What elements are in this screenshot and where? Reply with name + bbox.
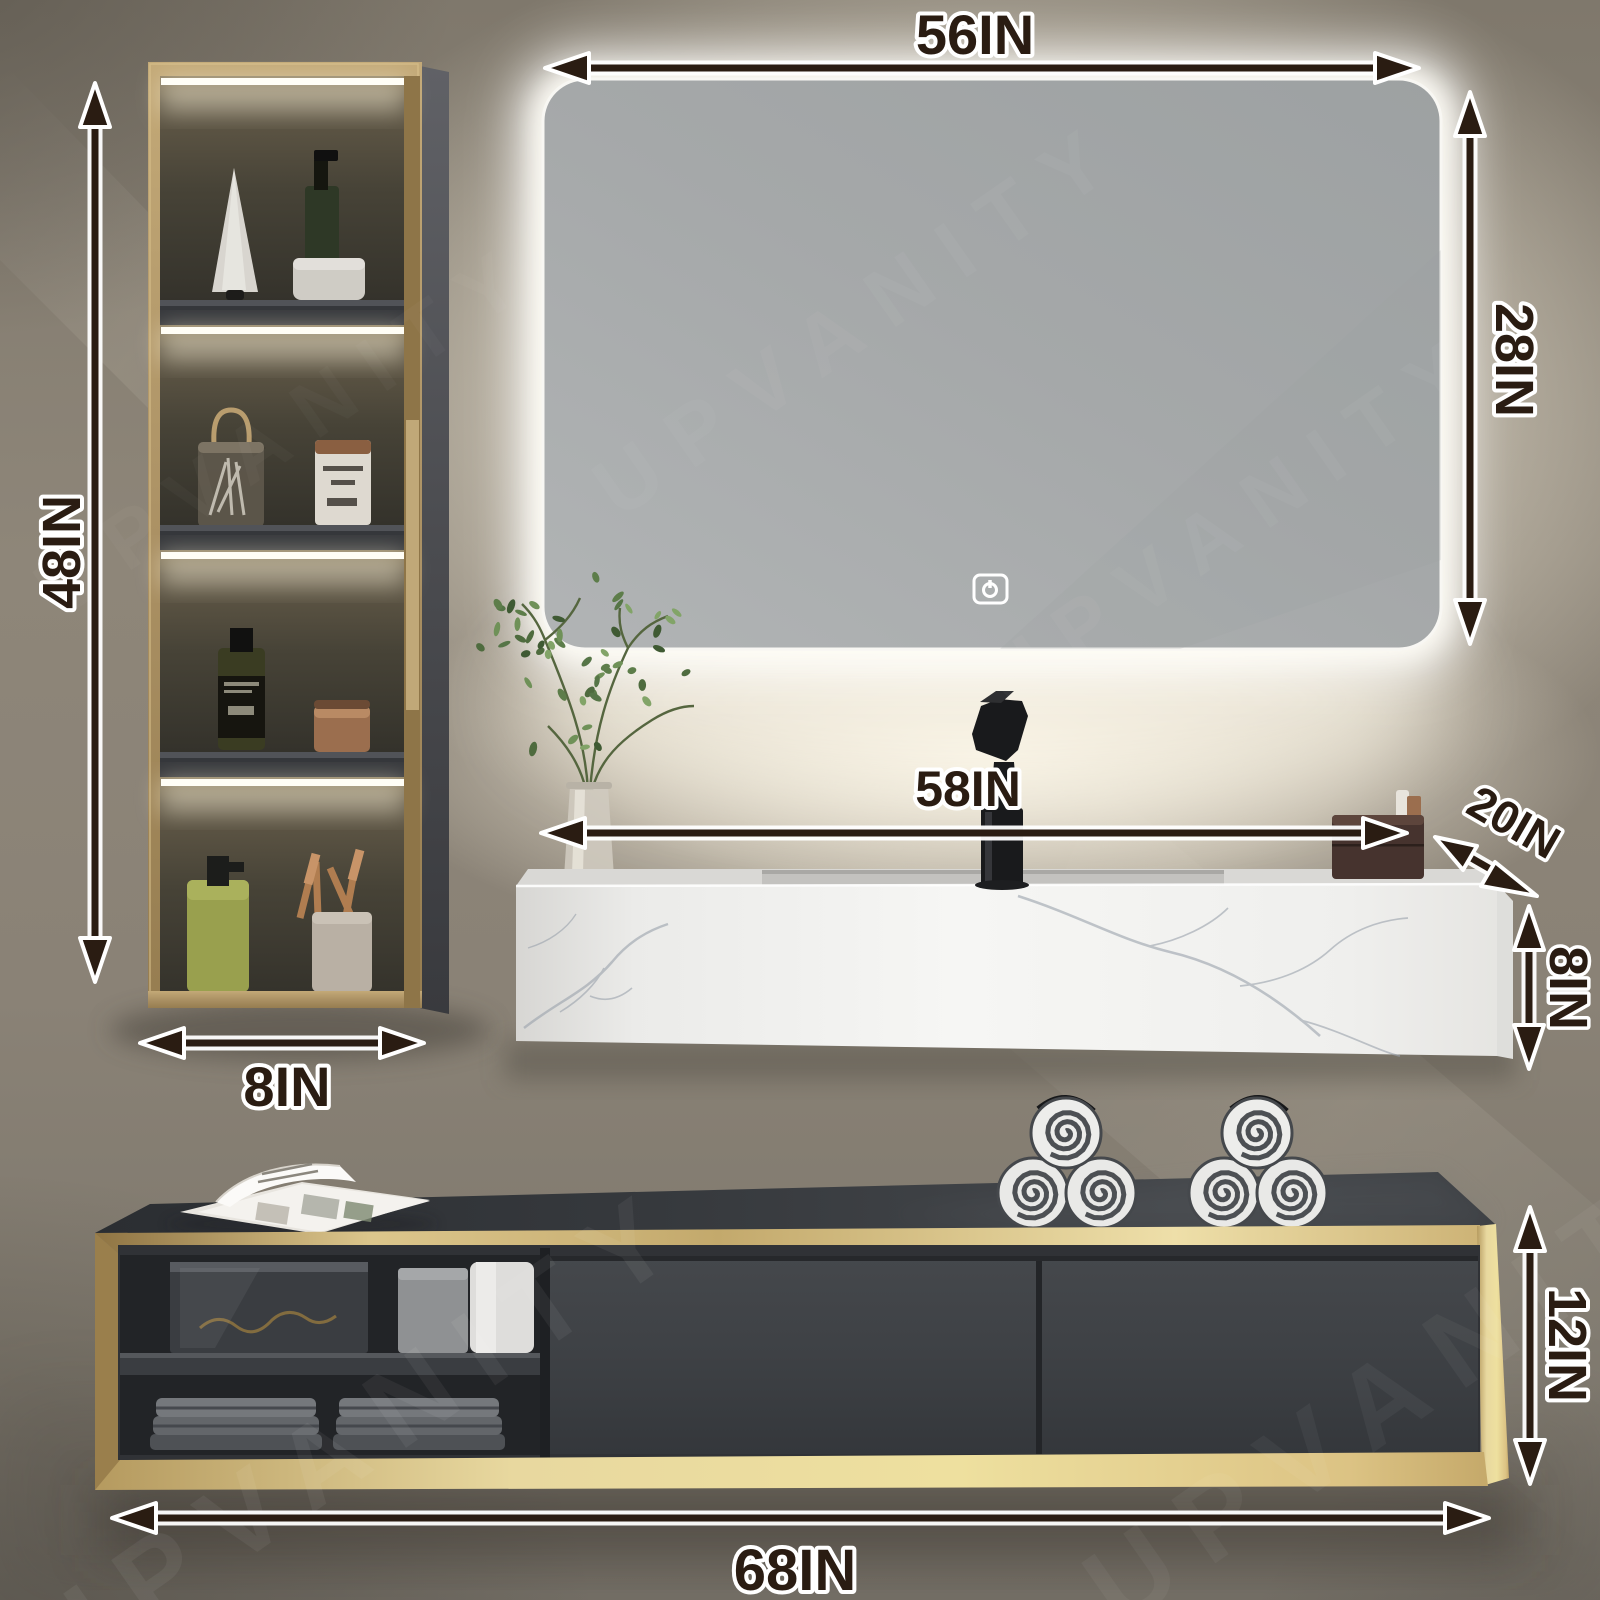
svg-text:68IN: 68IN (734, 1538, 857, 1600)
svg-text:58IN: 58IN (915, 761, 1021, 817)
svg-text:48IN: 48IN (32, 495, 92, 609)
svg-text:28IN: 28IN (1484, 303, 1544, 417)
svg-text:8IN: 8IN (243, 1055, 330, 1118)
svg-text:12IN: 12IN (1537, 1288, 1597, 1402)
svg-text:8IN: 8IN (1538, 946, 1598, 1030)
svg-text:56IN: 56IN (916, 3, 1034, 66)
